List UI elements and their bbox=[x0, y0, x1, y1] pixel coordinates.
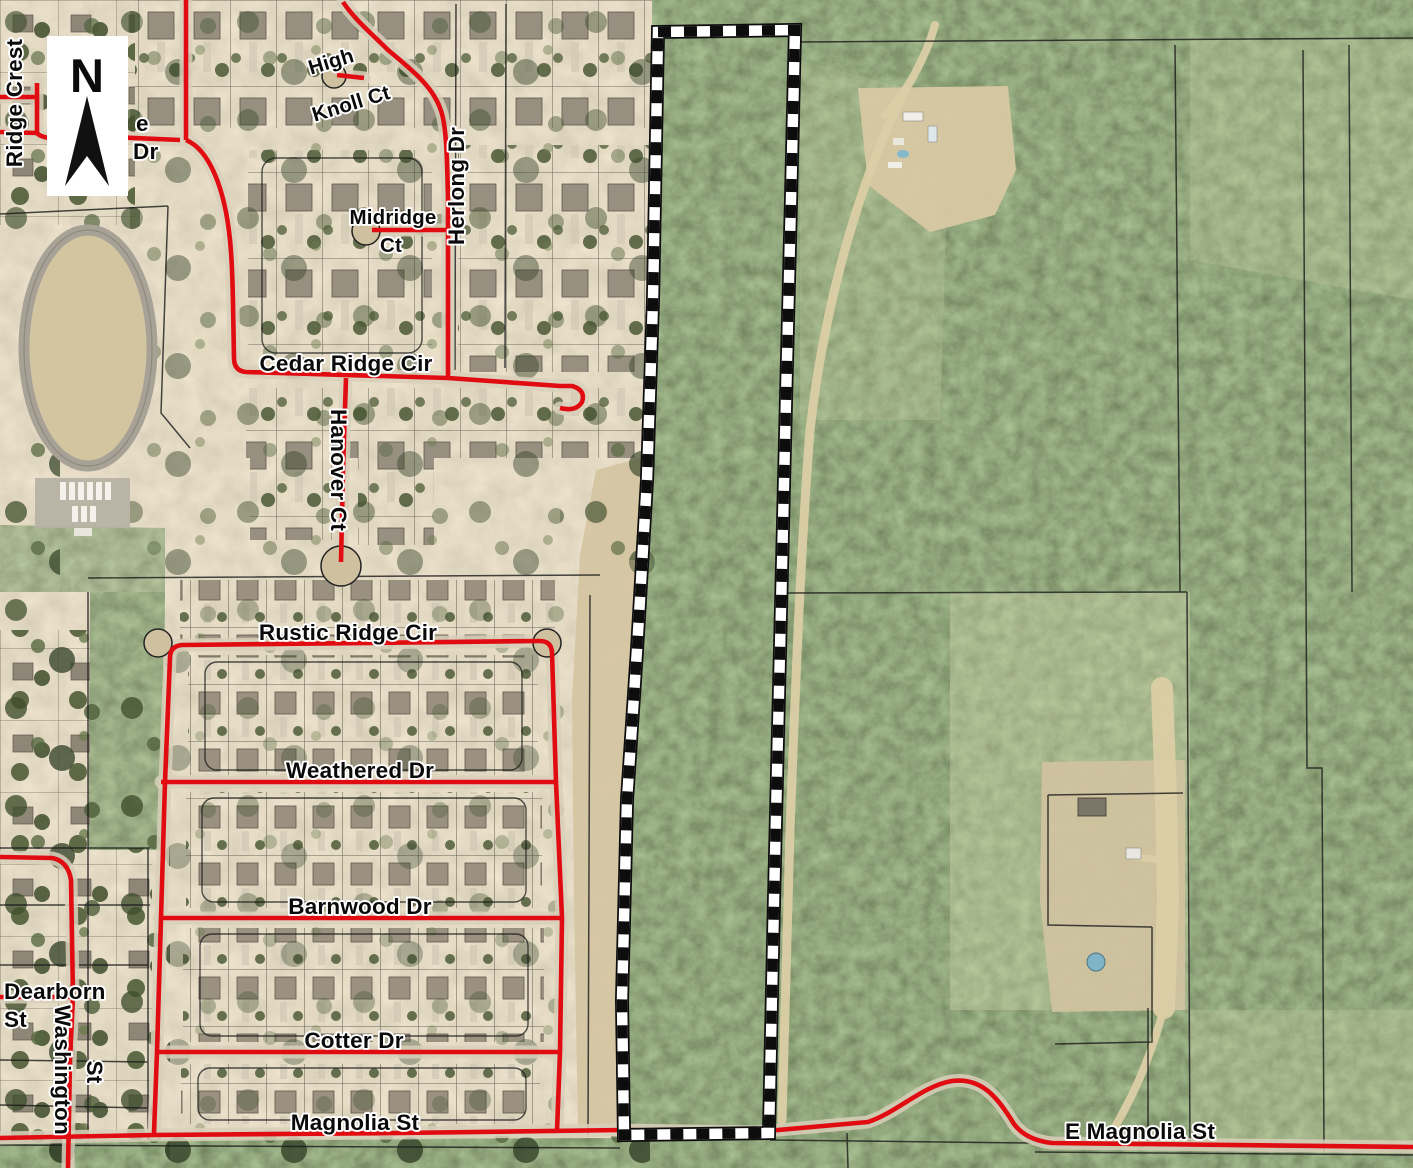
street-label-herlong-dr: Herlong Dr bbox=[444, 127, 469, 245]
road-high-knoll-ct bbox=[337, 75, 364, 78]
street-label-cedar-ridge-cir: Cedar Ridge Cir bbox=[259, 351, 432, 376]
north-label: N bbox=[70, 49, 104, 102]
street-label-dearborn-2: St bbox=[4, 1007, 27, 1032]
street-label-weathered-dr: Weathered Dr bbox=[286, 758, 434, 783]
street-label-hanover-ct: Hanover Ct bbox=[326, 409, 351, 531]
aerial-map-canvas: Ridge Crest e Dr High Knoll Ct Midridge … bbox=[0, 0, 1413, 1168]
street-label-midridge-2: Ct bbox=[380, 234, 402, 257]
aerial-map-view: Ridge Crest e Dr High Knoll Ct Midridge … bbox=[0, 0, 1413, 1168]
street-label-washington-1: Washington bbox=[50, 1005, 75, 1135]
street-label-cotter-dr: Cotter Dr bbox=[304, 1028, 403, 1053]
street-label-magnolia-st: Magnolia St bbox=[291, 1110, 420, 1135]
street-label-ridge-crest: Ridge Crest bbox=[2, 38, 27, 167]
track-oval bbox=[24, 230, 152, 466]
street-label-washington-2: St bbox=[82, 1061, 107, 1084]
street-label-dearborn-1: Dearborn bbox=[4, 979, 106, 1004]
dirt-field-strip bbox=[1162, 688, 1168, 1008]
street-label-partial-e: e bbox=[136, 111, 149, 136]
street-label-midridge-1: Midridge bbox=[349, 206, 436, 229]
street-label-e-magnolia-st: E Magnolia St bbox=[1065, 1119, 1215, 1144]
street-label-barnwood-dr: Barnwood Dr bbox=[288, 894, 431, 919]
parking-lot bbox=[35, 478, 130, 536]
street-label-partial-dr: Dr bbox=[133, 139, 158, 164]
scrub-patch bbox=[1190, 1010, 1413, 1145]
scrub-patch bbox=[1190, 40, 1413, 300]
north-arrow: N bbox=[47, 36, 128, 196]
street-label-rustic-ridge-cir: Rustic Ridge Cir bbox=[259, 620, 437, 645]
